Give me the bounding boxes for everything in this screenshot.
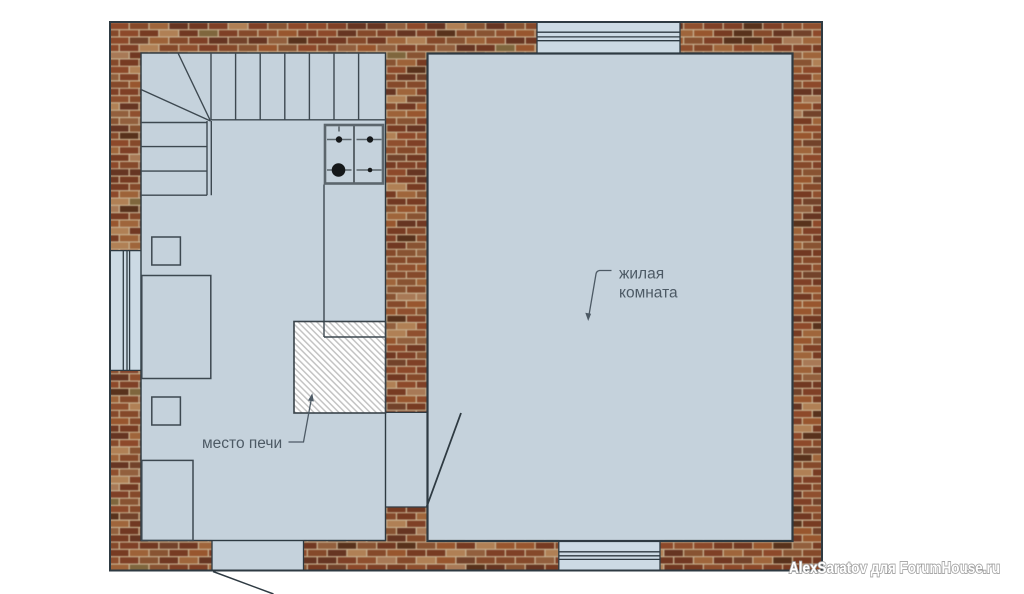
svg-text:AlexSaratov для ForumHouse.ru: AlexSaratov для ForumHouse.ru (789, 560, 1000, 577)
svg-text:место печи: место печи (202, 435, 282, 452)
svg-text:жилая: жилая (619, 266, 664, 283)
svg-text:комната: комната (619, 285, 678, 302)
